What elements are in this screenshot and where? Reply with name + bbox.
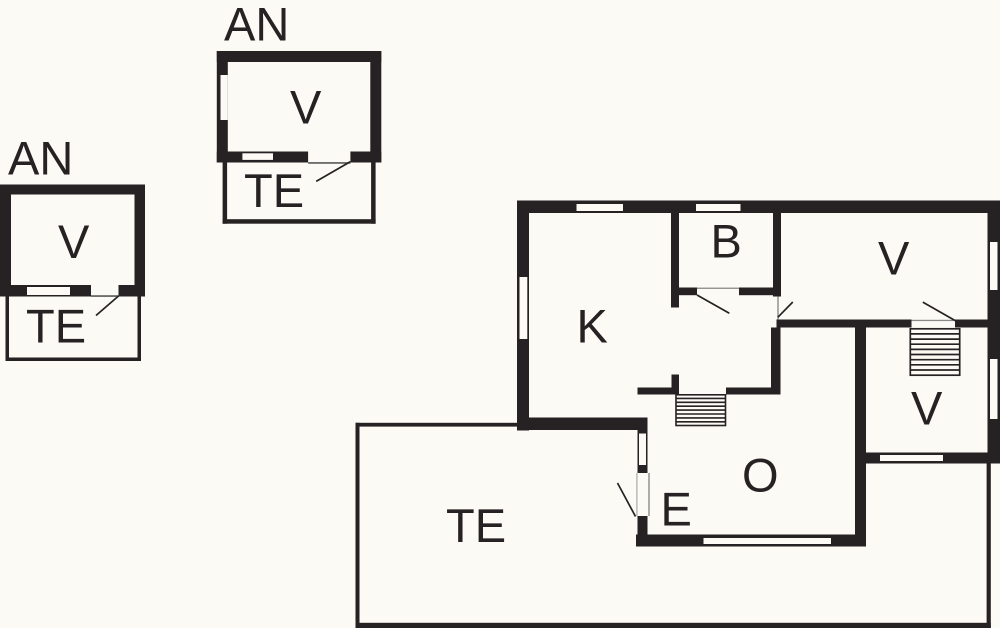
svg-text:TE: TE	[26, 300, 86, 353]
svg-text:O: O	[742, 449, 779, 502]
svg-text:TE: TE	[244, 164, 304, 217]
svg-text:TE: TE	[446, 499, 506, 552]
svg-text:B: B	[711, 215, 742, 268]
svg-text:AN: AN	[224, 0, 289, 51]
svg-text:V: V	[58, 215, 90, 268]
svg-text:E: E	[661, 483, 692, 536]
svg-text:K: K	[577, 300, 608, 353]
svg-text:V: V	[290, 81, 322, 134]
svg-text:AN: AN	[8, 132, 73, 185]
svg-text:V: V	[911, 382, 943, 435]
svg-text:V: V	[878, 232, 910, 285]
